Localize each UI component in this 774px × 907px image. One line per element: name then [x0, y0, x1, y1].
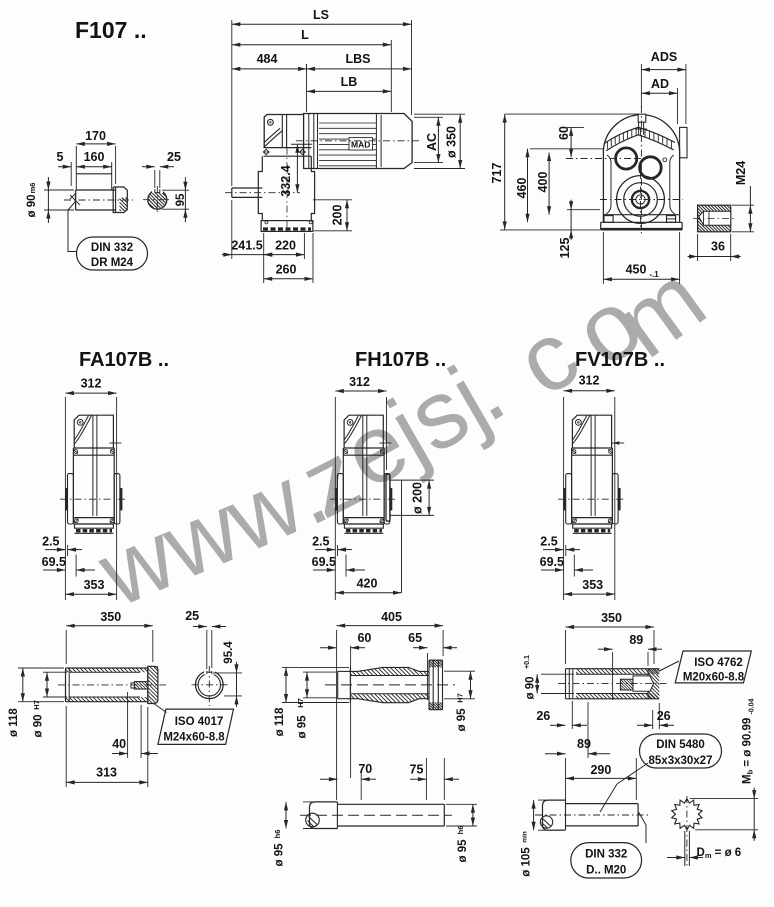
svg-text:LB: LB [341, 75, 358, 89]
svg-text:332.4: 332.4 [279, 165, 293, 196]
svg-text:h6: h6 [273, 830, 282, 839]
svg-text:ø 95: ø 95 [274, 843, 286, 867]
svg-text:450: 450 [626, 263, 647, 277]
svg-text:LS: LS [313, 8, 329, 22]
svg-text:60: 60 [557, 126, 571, 140]
svg-text:420: 420 [357, 577, 378, 591]
svg-text:M20x60-8.8: M20x60-8.8 [683, 672, 745, 684]
svg-text:ø 90: ø 90 [26, 194, 38, 217]
svg-text:2.5: 2.5 [42, 535, 59, 549]
svg-text:260: 260 [276, 263, 297, 277]
svg-text:ø 95: ø 95 [456, 708, 468, 732]
svg-text:ADS: ADS [651, 50, 677, 64]
svg-text:89: 89 [577, 737, 591, 751]
svg-text:460: 460 [515, 178, 529, 199]
svg-text:484: 484 [257, 52, 278, 66]
svg-text:H7: H7 [296, 698, 305, 708]
svg-text:ø 118: ø 118 [8, 708, 20, 737]
svg-text:312: 312 [349, 375, 370, 389]
svg-text:H7: H7 [456, 693, 465, 703]
svg-text:312: 312 [579, 374, 600, 388]
svg-text:350: 350 [100, 610, 121, 624]
svg-text:69.5: 69.5 [540, 555, 564, 569]
svg-text:717: 717 [490, 163, 504, 184]
svg-text:LBS: LBS [346, 52, 371, 66]
svg-text:60: 60 [357, 631, 371, 645]
svg-text:m6: m6 [28, 183, 37, 194]
svg-text:25: 25 [167, 150, 181, 164]
svg-text:95.4: 95.4 [223, 641, 235, 664]
svg-text:26: 26 [536, 709, 550, 723]
svg-text:400: 400 [536, 172, 550, 193]
svg-text:ø 200: ø 200 [411, 482, 425, 514]
svg-text:290: 290 [590, 763, 611, 777]
svg-text:85x3x30x27: 85x3x30x27 [649, 755, 713, 767]
svg-text:H7: H7 [32, 700, 41, 710]
svg-text:353: 353 [84, 578, 105, 592]
svg-text:ø 90: ø 90 [525, 676, 537, 699]
svg-text:FV107B ..: FV107B .. [575, 349, 665, 371]
svg-text:125: 125 [558, 238, 572, 259]
svg-text:353: 353 [582, 578, 603, 592]
svg-text:DIN 332: DIN 332 [585, 849, 627, 861]
svg-text:40: 40 [112, 737, 126, 751]
svg-text:350: 350 [601, 611, 622, 625]
svg-text:2.5: 2.5 [312, 535, 329, 549]
svg-text:170: 170 [85, 129, 106, 143]
svg-text:5: 5 [57, 150, 64, 164]
svg-text:ISO 4762: ISO 4762 [694, 657, 743, 669]
svg-text:min: min [522, 831, 529, 843]
svg-text:70: 70 [358, 762, 372, 776]
svg-text:FH107B ..: FH107B .. [355, 349, 446, 371]
svg-text:160: 160 [84, 150, 105, 164]
svg-text:FA107B ..: FA107B .. [79, 349, 169, 371]
svg-text:200: 200 [330, 205, 344, 226]
svg-text:AD: AD [651, 77, 669, 91]
svg-text:241.5: 241.5 [231, 239, 262, 253]
svg-text:M24x60-8.8: M24x60-8.8 [163, 732, 225, 744]
svg-text:405: 405 [381, 610, 402, 624]
svg-text:89: 89 [629, 633, 643, 647]
svg-text:75: 75 [410, 763, 424, 777]
svg-text:h6: h6 [456, 826, 465, 835]
svg-text:ø 95: ø 95 [457, 839, 469, 863]
svg-text:ISO 4017: ISO 4017 [175, 716, 224, 728]
svg-text:95: 95 [175, 193, 187, 206]
svg-text:ø 90: ø 90 [33, 714, 45, 737]
svg-text:M24: M24 [734, 161, 748, 185]
svg-text:69.5: 69.5 [42, 555, 66, 569]
svg-text:DIN 5480: DIN 5480 [656, 739, 705, 751]
svg-text:2.5: 2.5 [540, 535, 557, 549]
svg-text:25: 25 [185, 609, 199, 623]
svg-text:65: 65 [408, 631, 422, 645]
svg-text:ø 118: ø 118 [274, 707, 286, 736]
svg-text:L: L [301, 28, 309, 42]
svg-text:-.1: -.1 [649, 270, 659, 279]
svg-text:D.. M20: D.. M20 [586, 865, 626, 877]
svg-text:F107 ..: F107 .. [75, 17, 147, 43]
svg-text:Dm = ø 6: Dm = ø 6 [697, 847, 742, 860]
svg-text:220: 220 [275, 239, 296, 253]
svg-text:313: 313 [96, 766, 117, 780]
svg-text:ø 95: ø 95 [297, 715, 309, 739]
svg-text:ø 105: ø 105 [521, 847, 533, 877]
svg-text:ø 350: ø 350 [444, 126, 458, 158]
svg-text:+0.1: +0.1 [524, 655, 531, 669]
svg-text:312: 312 [81, 377, 102, 391]
svg-text:DR M24: DR M24 [91, 257, 134, 269]
svg-text:26: 26 [657, 709, 671, 723]
svg-text:DIN 332: DIN 332 [91, 242, 133, 254]
svg-text:AC: AC [425, 133, 439, 151]
svg-text:36: 36 [711, 240, 725, 254]
svg-text:69.5: 69.5 [312, 555, 336, 569]
